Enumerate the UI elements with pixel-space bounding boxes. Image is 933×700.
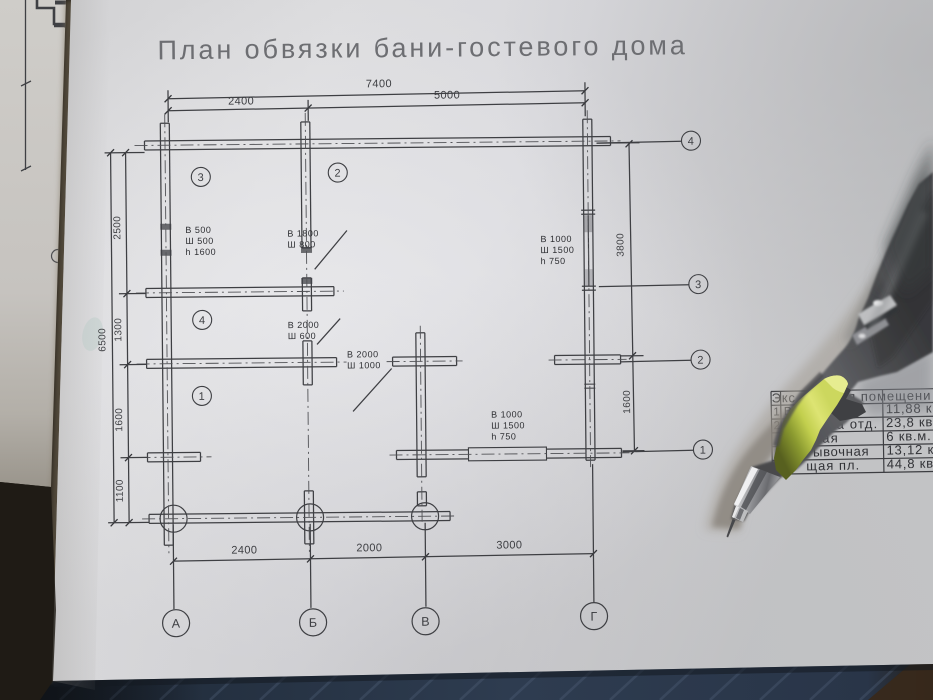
svg-text:1600: 1600: [114, 408, 125, 432]
svg-text:В: В: [421, 615, 430, 629]
svg-text:3000: 3000: [496, 539, 522, 551]
svg-text:2: 2: [334, 168, 341, 180]
svg-text:2500: 2500: [112, 216, 123, 240]
svg-text:4: 4: [199, 315, 206, 327]
svg-text:Ш 1500: Ш 1500: [491, 420, 525, 430]
svg-text:План обвязки бани-гостевого до: План обвязки бани-гостевого дома: [157, 30, 687, 65]
svg-text:1300: 1300: [113, 318, 124, 342]
svg-text:2400: 2400: [228, 95, 254, 107]
svg-text:Б: Б: [309, 616, 318, 630]
svg-text:1: 1: [700, 445, 707, 457]
svg-text:В 500: В 500: [185, 225, 211, 235]
svg-text:Ш 500: Ш 500: [185, 236, 213, 246]
svg-text:Ш 1000: Ш 1000: [347, 360, 381, 370]
svg-text:6500: 6500: [97, 328, 108, 352]
svg-text:2: 2: [697, 355, 704, 367]
svg-text:4: 4: [688, 136, 695, 148]
svg-text:В 2000: В 2000: [347, 349, 379, 359]
svg-text:Ш 600: Ш 600: [288, 331, 316, 341]
svg-text:h 1600: h 1600: [185, 247, 216, 257]
svg-text:h 750: h 750: [541, 256, 566, 266]
svg-text:3: 3: [197, 172, 204, 184]
svg-text:2400: 2400: [231, 544, 257, 556]
svg-text:В 1800: В 1800: [287, 228, 319, 238]
svg-text:Ш 800: Ш 800: [287, 239, 315, 249]
svg-text:h 750: h 750: [491, 431, 516, 441]
svg-text:44,8 кв: 44,8 кв: [887, 456, 933, 472]
svg-text:3800: 3800: [615, 233, 626, 257]
svg-text:1: 1: [199, 391, 206, 403]
svg-text:В 2000: В 2000: [288, 320, 320, 330]
svg-text:1600: 1600: [622, 390, 633, 414]
svg-text:щая пл.: щая пл.: [806, 457, 860, 473]
svg-text:1100: 1100: [115, 479, 126, 502]
svg-text:2000: 2000: [356, 542, 382, 554]
svg-text:В 1000: В 1000: [491, 409, 523, 419]
svg-text:3: 3: [695, 279, 702, 291]
svg-text:Ш 1500: Ш 1500: [540, 245, 574, 255]
svg-text:5000: 5000: [434, 89, 460, 101]
svg-text:Г: Г: [590, 610, 597, 624]
svg-text:В 1000: В 1000: [540, 234, 572, 244]
svg-text:7400: 7400: [366, 78, 392, 90]
svg-text:А: А: [172, 617, 181, 631]
